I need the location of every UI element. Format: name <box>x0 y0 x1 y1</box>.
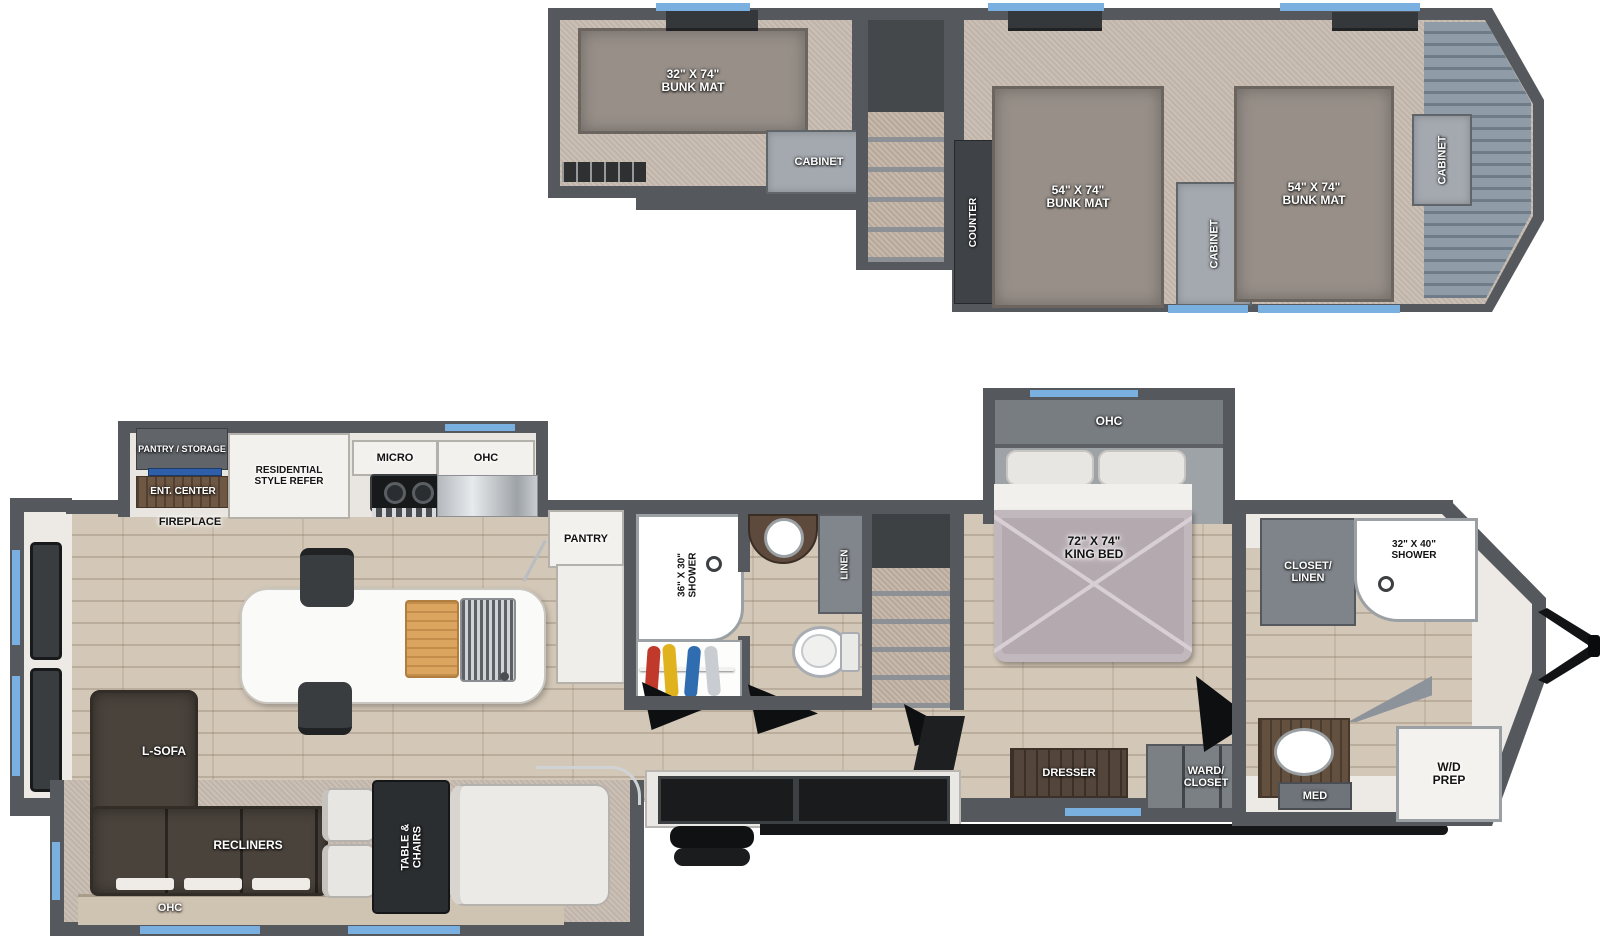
loft-cabinet-right: CABINET <box>1412 114 1472 206</box>
loft-window <box>656 3 750 11</box>
entertainment-center: ENT. CENTER <box>136 476 230 508</box>
front-shower-label: 32" X 40" SHOWER <box>1360 530 1468 570</box>
king-bed-label: 72" X 74" KING BED <box>1014 528 1174 568</box>
loft-window <box>1280 3 1420 11</box>
entry-steps-icon <box>670 826 754 848</box>
entry-door-glass <box>658 776 796 824</box>
dinette-table: TABLE & CHAIRS <box>372 780 450 914</box>
living-slide-window <box>52 842 60 900</box>
toilet-seat-icon <box>801 634 837 668</box>
stove-grate-icon <box>372 508 442 517</box>
top-wall <box>66 500 122 514</box>
med-sink-icon <box>1274 728 1334 776</box>
bedroom-slide-window <box>1030 390 1138 397</box>
loft-storage-hatch <box>562 162 646 182</box>
loft-bunk-right: 54" X 74" BUNK MAT <box>1234 86 1394 302</box>
glass-partition-icon <box>536 766 641 805</box>
pantry-storage-cabinet: PANTRY / STORAGE <box>136 428 228 470</box>
loft-window <box>1258 305 1400 313</box>
bath-left-wall <box>624 514 636 710</box>
loft-stairs <box>868 112 944 262</box>
rear-window-glass <box>12 550 20 645</box>
shower-drain-icon <box>706 556 722 572</box>
mid-shower-label: 36" X 30" SHOWER <box>636 514 738 636</box>
med-cabinet: MED <box>1278 782 1352 810</box>
stair-underlanding <box>872 514 950 568</box>
roof-vent-icon <box>1332 12 1418 31</box>
stair-wall <box>862 514 872 710</box>
bath-sink-icon <box>764 518 804 558</box>
microwave: MICRO <box>352 440 438 476</box>
kitchen-slide-window <box>445 424 515 431</box>
bath-bottom-wall <box>752 696 872 710</box>
refrigerator: RESIDENTIAL STYLE REFER <box>228 433 350 519</box>
bath-bottom-wall <box>632 696 754 710</box>
washer-dryer-prep: W/D PREP <box>1396 726 1502 822</box>
island-sink-icon <box>460 598 516 682</box>
dining-chair <box>322 788 376 842</box>
trailer-hitch-icon <box>1538 598 1600 694</box>
rv-floorplan: 32" X 74" BUNK MAT CABINET COUNTER 54" X… <box>0 0 1600 946</box>
tv-icon <box>148 468 222 476</box>
roof-vent-icon <box>1008 10 1102 31</box>
living-ohc-label: OHC <box>130 896 210 920</box>
bar-stool-icon <box>298 682 352 735</box>
bed-sheet <box>994 484 1192 512</box>
kitchen-overhead-cabinet: OHC <box>437 440 535 477</box>
loft-window <box>1168 305 1248 313</box>
living-slide-window <box>140 926 260 934</box>
loft-stair-landing <box>868 20 944 112</box>
entry-steps-icon <box>674 848 750 866</box>
loft-bunk-left: 32" X 74" BUNK MAT <box>578 28 808 134</box>
bedroom-window <box>1065 808 1141 816</box>
cutting-board-icon <box>405 600 459 678</box>
sofa-cushion <box>184 878 242 890</box>
bedroom-overhead-cabinet: OHC <box>995 400 1223 448</box>
faucet-icon <box>500 672 509 681</box>
sofa-cushion <box>252 878 310 890</box>
bar-stool-icon <box>300 548 354 607</box>
pantry: PANTRY <box>548 510 624 568</box>
kitchen-counter <box>437 475 538 517</box>
shower-drain-icon <box>1378 576 1394 592</box>
pillow-icon <box>1098 450 1186 486</box>
rear-window-glass <box>12 676 20 776</box>
front-closet-linen: CLOSET/ LINEN <box>1260 518 1356 626</box>
loft-window <box>988 3 1104 11</box>
main-stairs <box>872 568 950 708</box>
roof-vent-icon <box>666 10 758 31</box>
toilet-tank-icon <box>840 632 860 672</box>
burner-icon <box>384 482 406 504</box>
rear-window <box>30 668 62 792</box>
entry-door-glass <box>796 776 950 824</box>
pillow-icon <box>1006 450 1094 486</box>
living-slide-window <box>348 926 460 934</box>
stair-wall <box>950 514 964 710</box>
sofa-cushion <box>116 878 174 890</box>
loft-bunk-mid: 54" X 74" BUNK MAT <box>992 86 1164 308</box>
l-sofa-label: L-SOFA <box>104 742 224 762</box>
dresser: DRESSER <box>1010 748 1128 798</box>
dining-chair <box>322 844 376 898</box>
loft-counter: COUNTER <box>954 140 994 304</box>
burner-icon <box>412 482 434 504</box>
rear-window <box>30 542 62 660</box>
recliners-label: RECLINERS <box>188 836 308 856</box>
